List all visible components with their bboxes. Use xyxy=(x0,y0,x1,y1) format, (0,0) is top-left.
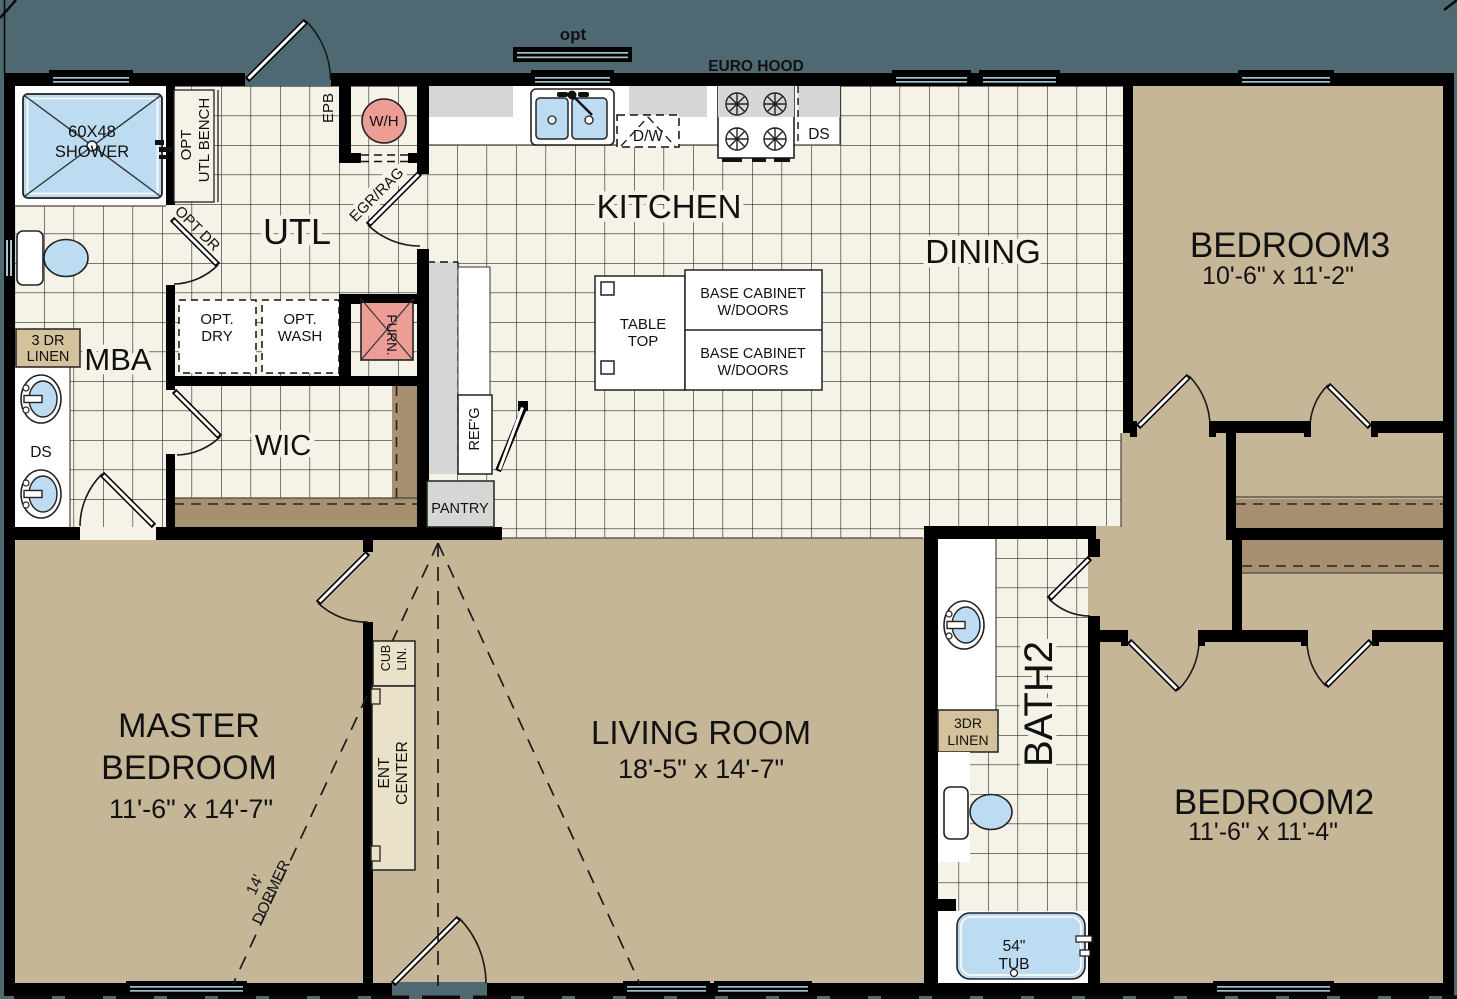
svg-text:60X48: 60X48 xyxy=(68,123,116,141)
svg-text:UTL: UTL xyxy=(263,211,331,252)
svg-text:3 DR: 3 DR xyxy=(31,333,64,349)
svg-text:OPT: OPT xyxy=(178,130,195,161)
svg-text:REF'G: REF'G xyxy=(467,407,483,450)
svg-text:D/W: D/W xyxy=(633,128,664,145)
svg-text:DINING: DINING xyxy=(925,233,1041,270)
svg-text:11'-6" x 14'-7": 11'-6" x 14'-7" xyxy=(109,794,273,824)
svg-text:TABLE: TABLE xyxy=(620,316,666,333)
svg-text:10'-6" x 11'-2": 10'-6" x 11'-2" xyxy=(1202,262,1354,290)
svg-text:BEDROOM2: BEDROOM2 xyxy=(1174,783,1374,822)
svg-text:W/H: W/H xyxy=(369,113,398,130)
svg-text:LINEN: LINEN xyxy=(27,349,70,365)
svg-text:LIVING ROOM: LIVING ROOM xyxy=(591,714,811,751)
svg-text:BATH2: BATH2 xyxy=(1017,641,1061,767)
svg-text:MBA: MBA xyxy=(84,342,152,377)
svg-text:FURN.: FURN. xyxy=(384,314,399,355)
svg-text:MASTER: MASTER xyxy=(118,707,260,745)
svg-text:18'-5" x 14'-7": 18'-5" x 14'-7" xyxy=(618,754,784,784)
svg-text:EPB: EPB xyxy=(320,93,337,123)
svg-text:BASE CABINET: BASE CABINET xyxy=(700,286,806,302)
svg-text:ENT: ENT xyxy=(376,757,393,789)
svg-text:KITCHEN: KITCHEN xyxy=(597,188,742,225)
svg-text:SHOWER: SHOWER xyxy=(55,143,129,161)
svg-text:UTL BENCH: UTL BENCH xyxy=(196,98,213,182)
svg-text:3DR: 3DR xyxy=(954,715,982,731)
svg-text:DS: DS xyxy=(30,444,52,461)
svg-text:LIN.: LIN. xyxy=(395,648,409,671)
svg-text:opt: opt xyxy=(560,25,587,44)
svg-text:BEDROOM3: BEDROOM3 xyxy=(1190,226,1390,265)
svg-text:W/DOORS: W/DOORS xyxy=(718,363,789,379)
svg-text:EURO HOOD: EURO HOOD xyxy=(708,58,804,75)
svg-text:BEDROOM: BEDROOM xyxy=(101,749,277,787)
svg-text:DS: DS xyxy=(808,126,830,143)
svg-text:OPT.: OPT. xyxy=(283,311,316,328)
svg-text:LINEN: LINEN xyxy=(947,732,988,748)
svg-text:TOP: TOP xyxy=(628,333,659,350)
svg-text:WASH: WASH xyxy=(278,328,322,345)
svg-text:11'-6" x 11'-4": 11'-6" x 11'-4" xyxy=(1188,818,1338,846)
svg-text:CUB: CUB xyxy=(379,645,393,671)
svg-text:PANTRY: PANTRY xyxy=(431,501,489,517)
svg-text:54": 54" xyxy=(1003,938,1026,955)
svg-text:OPT.: OPT. xyxy=(200,311,233,328)
svg-text:CENTER: CENTER xyxy=(394,741,411,805)
svg-text:WIC: WIC xyxy=(255,430,311,462)
svg-text:DRY: DRY xyxy=(201,328,232,345)
svg-text:BASE CABINET: BASE CABINET xyxy=(700,346,806,362)
svg-text:W/DOORS: W/DOORS xyxy=(718,303,789,319)
